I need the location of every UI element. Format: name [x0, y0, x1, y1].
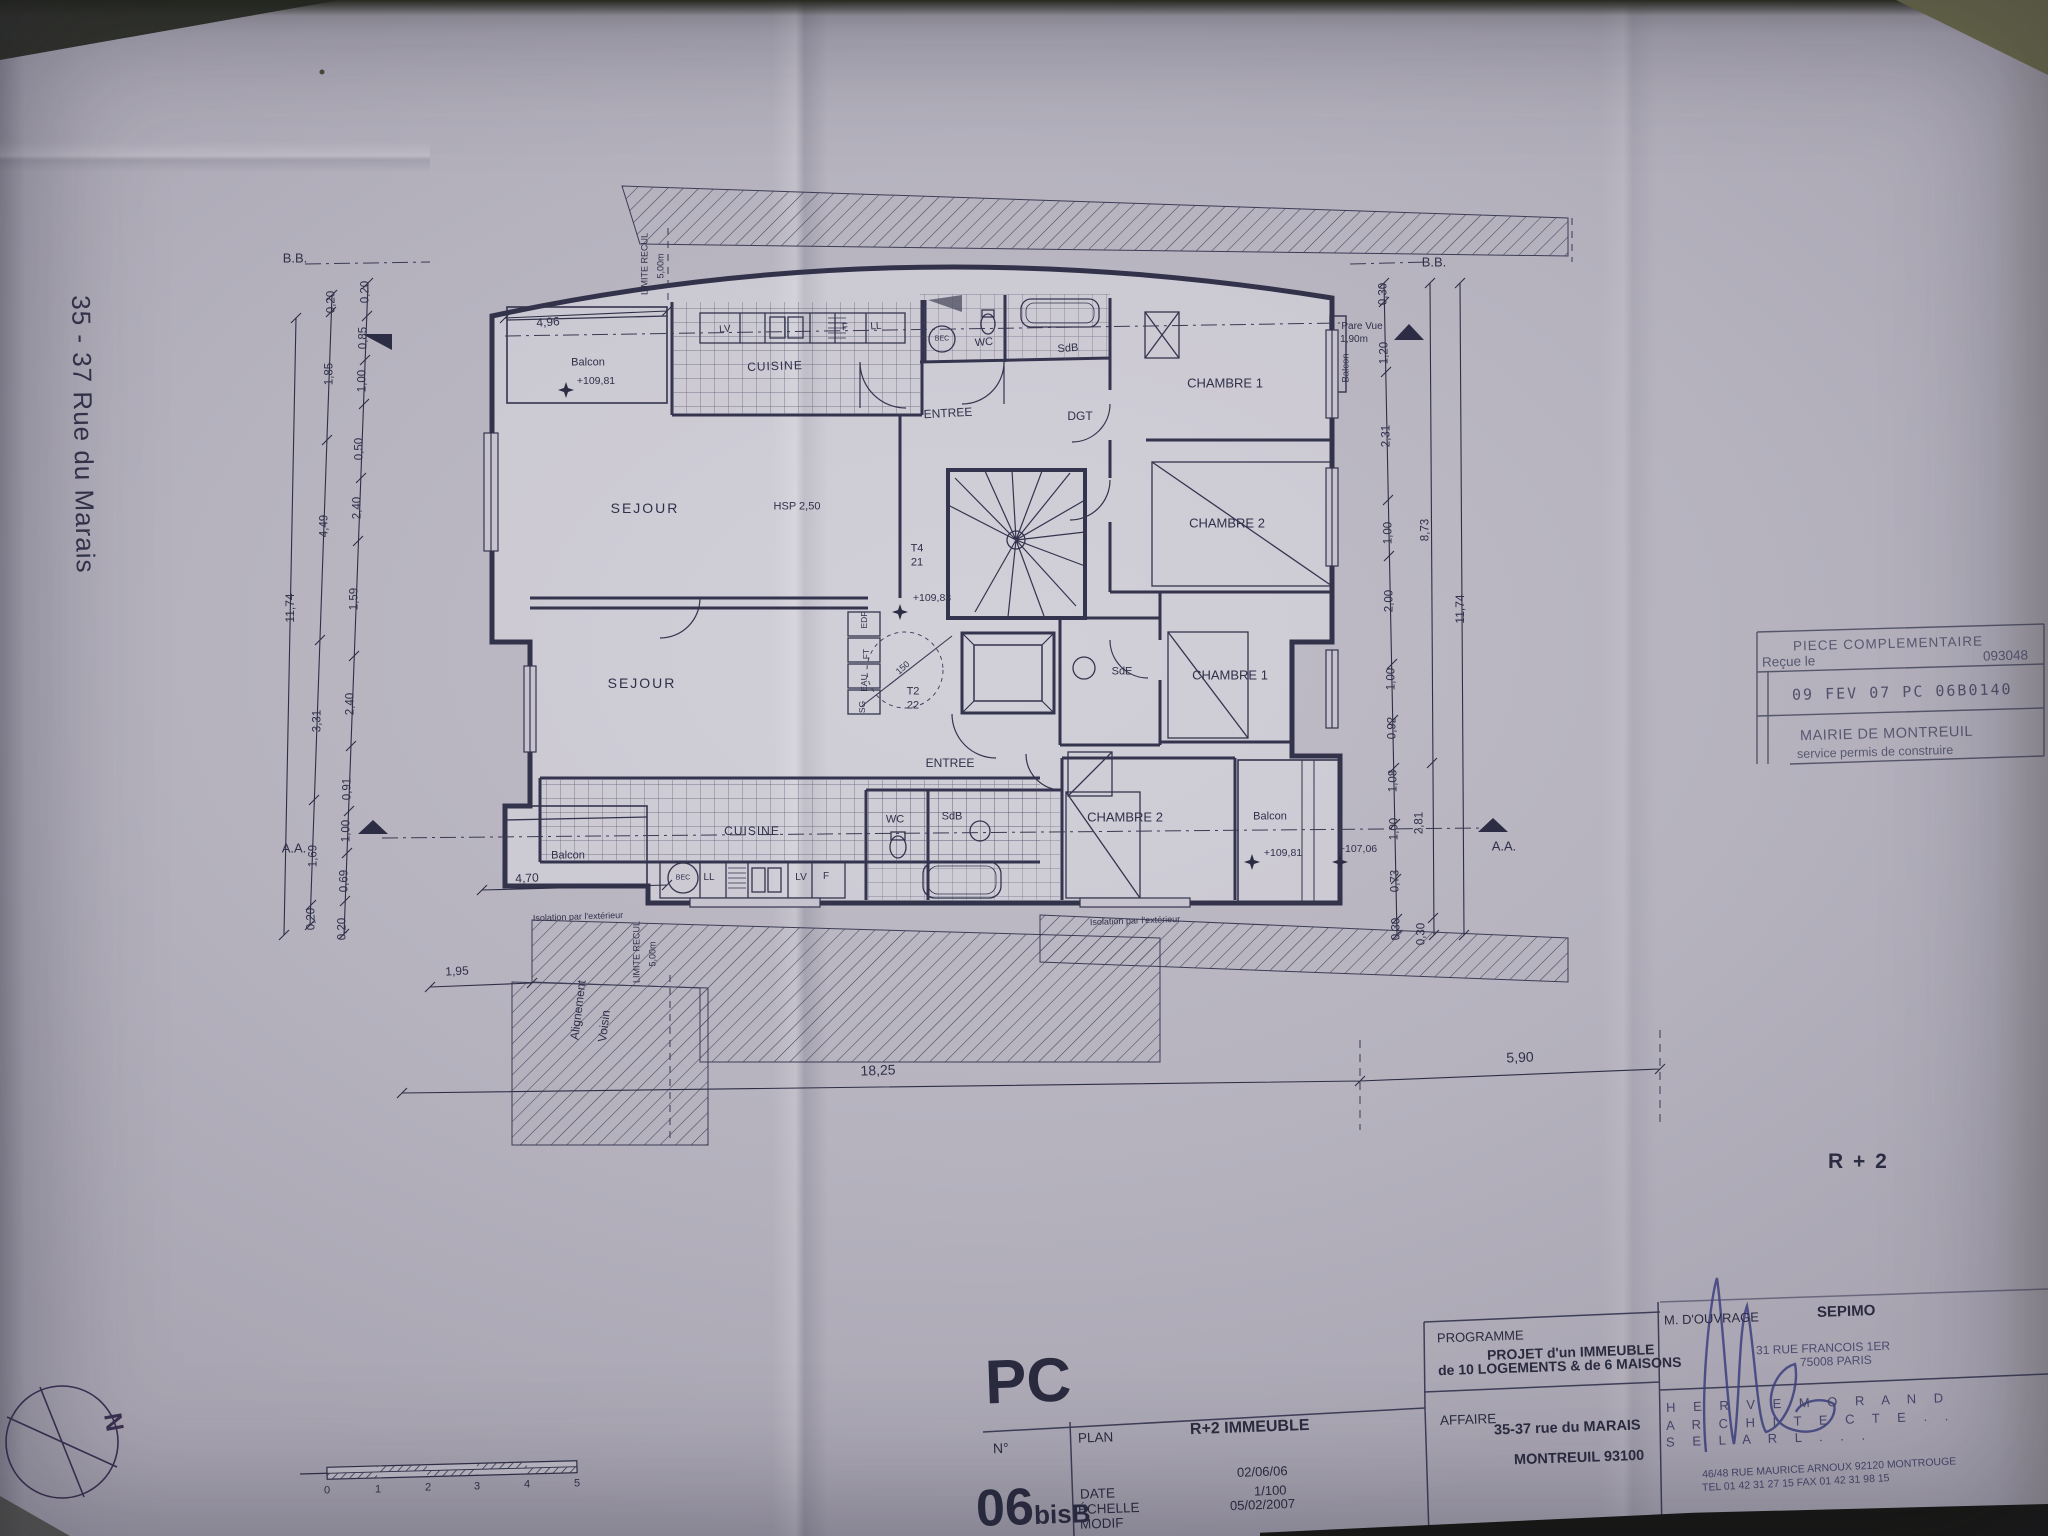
scalebar-tick-label: 1 [375, 1485, 381, 1496]
stamp-received-label: Reçue le [1762, 653, 1816, 670]
affaire-label: AFFAIRE [1440, 1411, 1497, 1428]
owner-addr2: 75008 PARIS [1800, 1354, 1872, 1370]
sheet-number-big: 06 [975, 1478, 1035, 1536]
sheet-number: 06bisB [975, 1476, 1091, 1536]
street-address-label: 35 - 37 Rue du Marais [65, 295, 100, 574]
programme-label: PROGRAMME [1437, 1328, 1524, 1346]
date-value: 02/06/06 [1237, 1464, 1288, 1481]
floor-level-label: R + 2 [1828, 1150, 1889, 1174]
scalebar-tick-label: 4 [524, 1480, 530, 1491]
scalebar-tick-label: 2 [425, 1483, 431, 1494]
floorplan-photo: SEJOURSEJOURCUISINECUISINECHAMBRE 1CHAMB… [0, 0, 2048, 1536]
plan-label: PLAN [1078, 1429, 1114, 1446]
scalebar-tick-label: 3 [474, 1482, 480, 1493]
scalebar-tick-label: 5 [574, 1479, 580, 1490]
doc-type: PC [984, 1345, 1073, 1419]
stamp-number: 093048 [1983, 647, 2028, 664]
owner-name: SEPIMO [1817, 1302, 1876, 1321]
sheet-number-label: N° [993, 1440, 1009, 1457]
scalebar-labels: 012345 [0, 0, 2048, 1536]
scalebar-tick-label: 0 [324, 1486, 330, 1497]
modif-value: 05/02/2007 [1230, 1497, 1296, 1514]
date-label: DATE [1080, 1485, 1116, 1502]
modif-label: MODIF [1080, 1515, 1124, 1532]
